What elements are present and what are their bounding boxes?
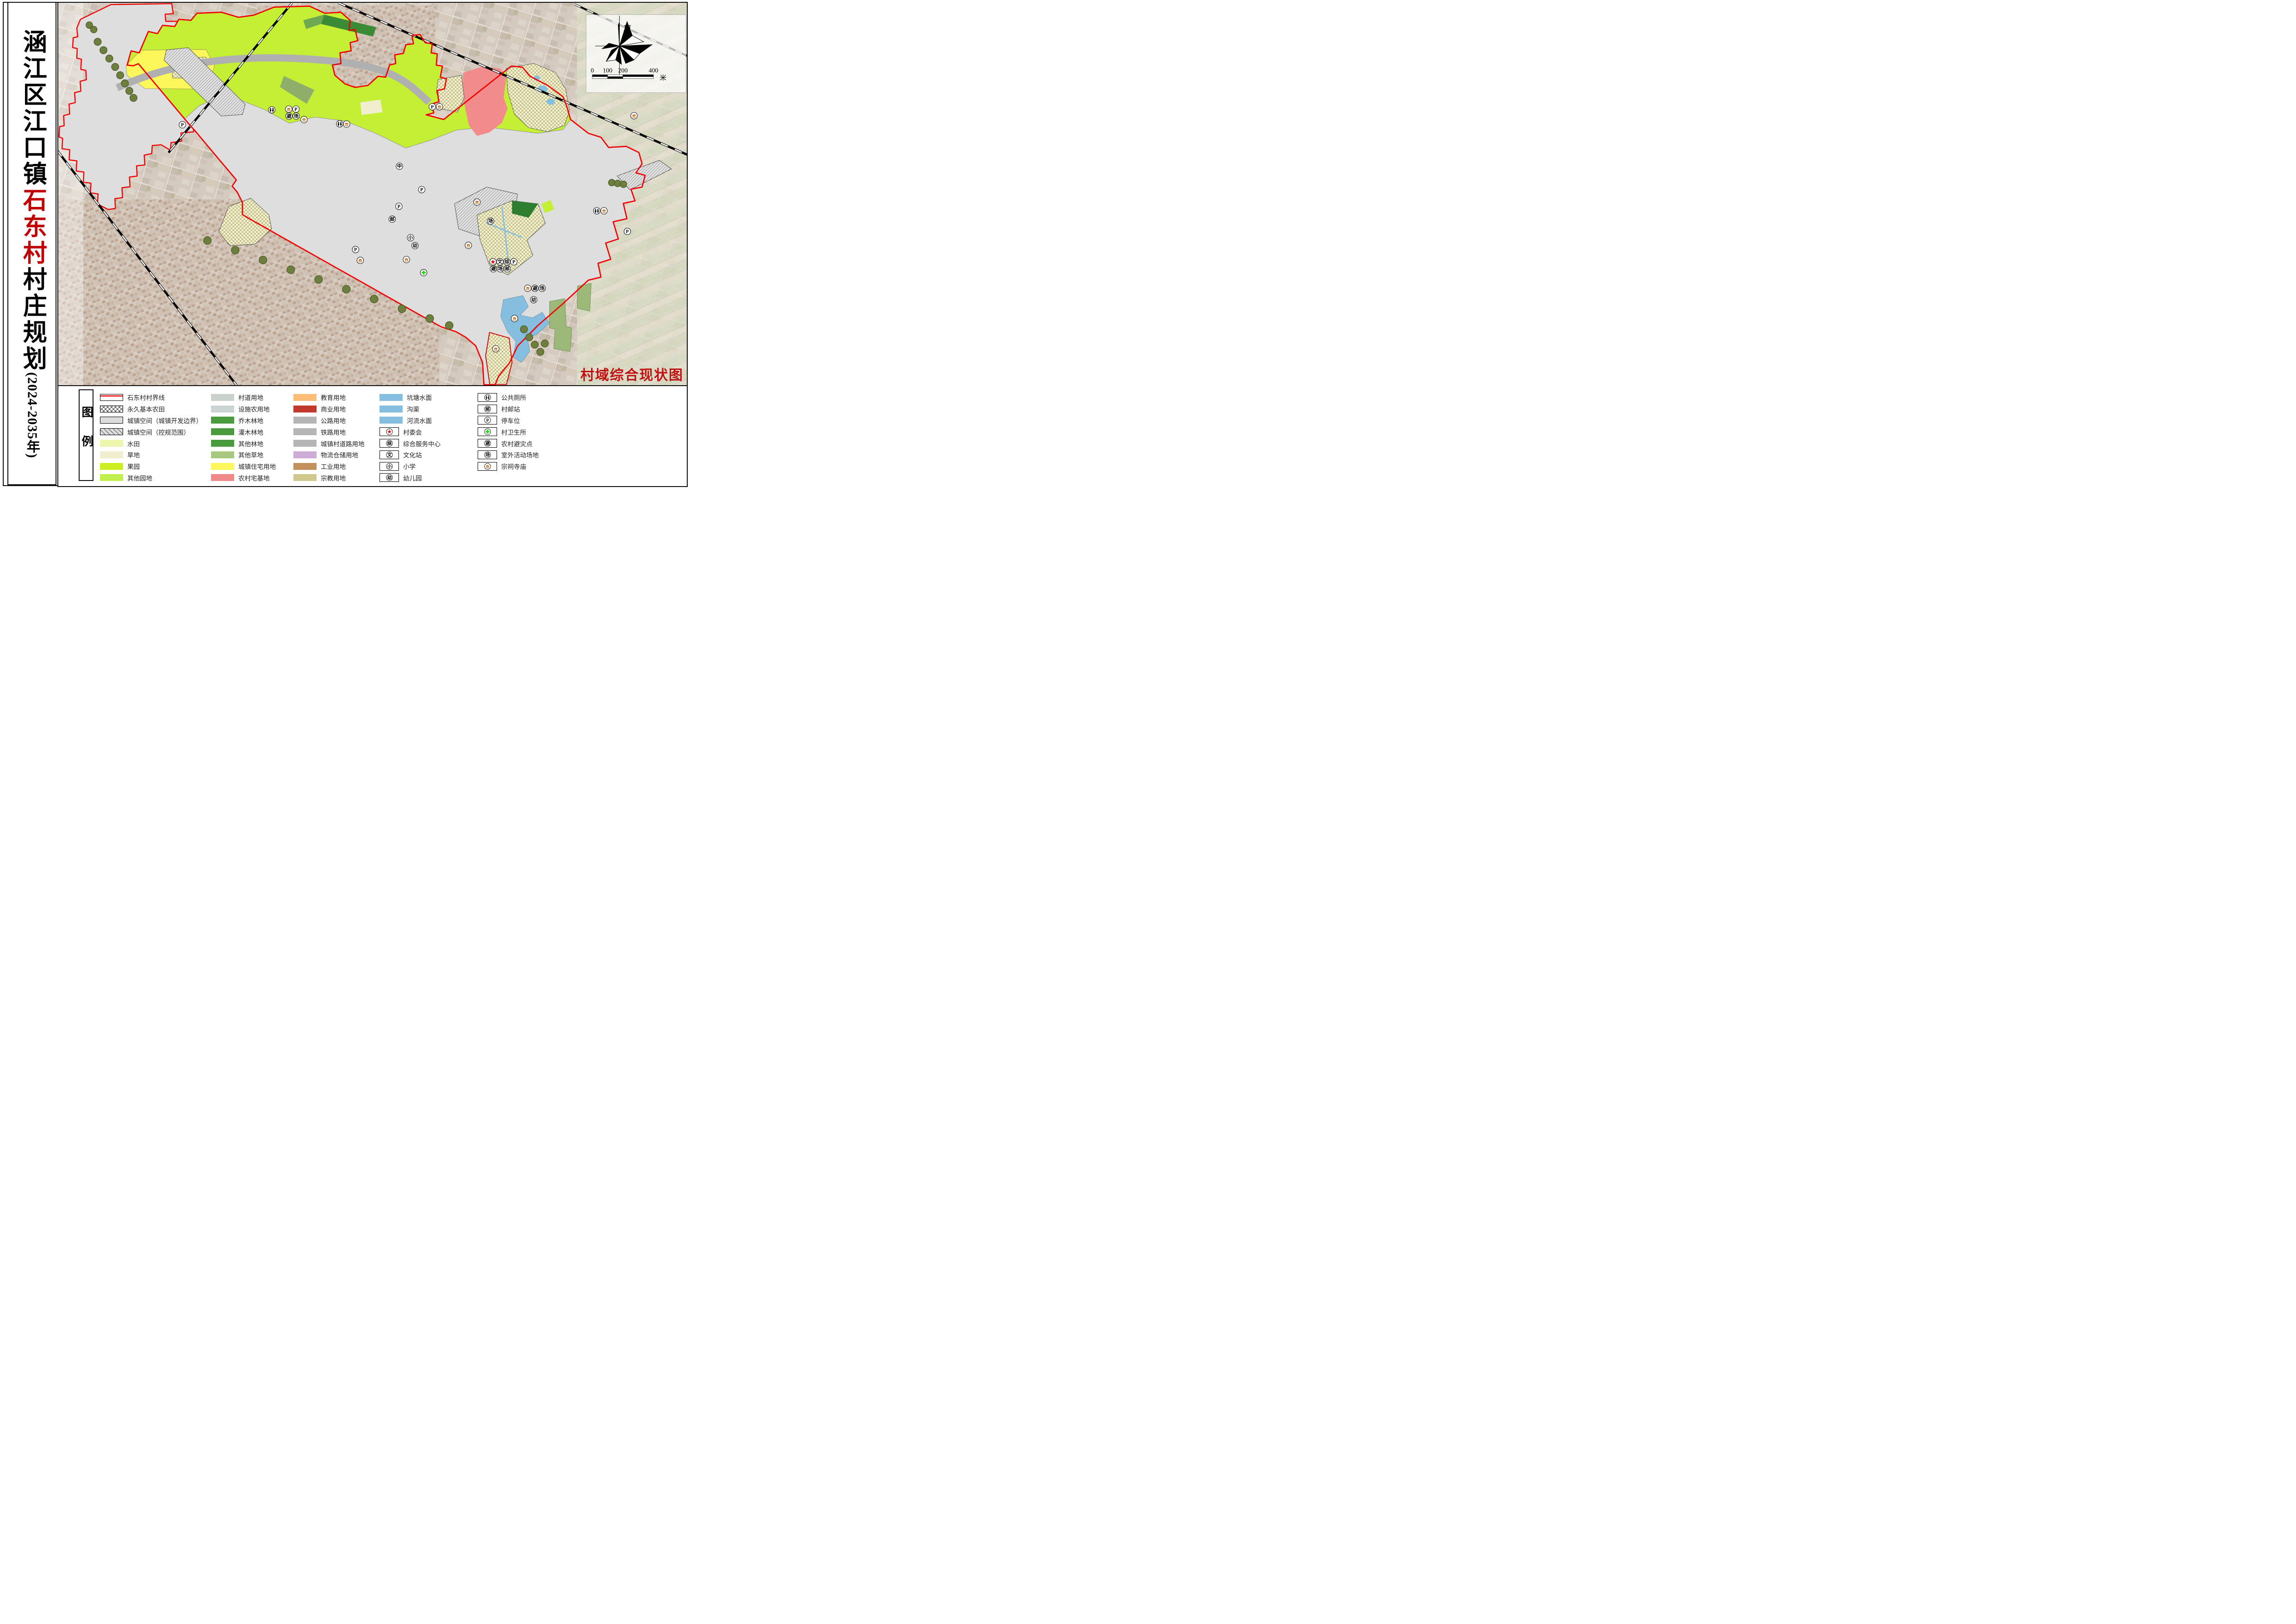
legend-item-label: 小学 — [403, 462, 416, 471]
legend-item: P停车位 — [478, 415, 539, 426]
legend-item-label: 宗教用地 — [321, 473, 346, 482]
legend-item: 河流水面 — [380, 415, 441, 426]
legend-icon-box: 场 — [478, 450, 497, 459]
map-icon-避: 避 — [490, 265, 497, 272]
legend-icon-box — [478, 462, 497, 471]
svg-text:P: P — [512, 260, 515, 265]
legend-item-label: 室外活动场地 — [501, 450, 539, 459]
legend-item-label: 村委会 — [403, 427, 422, 437]
map-icon-temple — [436, 103, 442, 110]
legend-item: 水田 — [100, 437, 202, 449]
legend-column-5: 公共厕所邮村邮站P停车位村卫生所避农村避灾点场室外活动场地宗祠寺庙 — [478, 392, 539, 472]
legend-swatch-highway — [293, 417, 317, 424]
legend-item-label: 村卫生所 — [501, 427, 526, 437]
legend-icon-box — [478, 393, 497, 402]
幼-icon: 幼 — [386, 474, 393, 481]
legend-item: ★村委会 — [380, 426, 441, 437]
map-icon-toilet — [593, 207, 600, 214]
map-icon-场: 场 — [539, 285, 545, 291]
legend-item: 邮村邮站 — [478, 403, 539, 415]
legend-item-label: 停车位 — [501, 416, 520, 425]
north-scale-box: N 0 100 200 400 米 — [586, 15, 686, 93]
legend-swatch-ruralhome — [211, 474, 234, 481]
svg-text:幼: 幼 — [413, 243, 417, 249]
map-icon-幼: 幼 — [412, 242, 418, 249]
legend-item-label: 村邮站 — [501, 404, 520, 413]
legend-item: 其他草地 — [211, 449, 276, 461]
legend-swatch-pond — [380, 394, 403, 401]
svg-text:邮: 邮 — [485, 406, 490, 412]
north-label: N — [624, 23, 631, 34]
legend-swatch-permfarm — [100, 406, 123, 412]
plan-title-village: 石东村 — [19, 187, 45, 267]
legend-swatch-commerce — [293, 406, 317, 412]
svg-text:幼: 幼 — [531, 297, 536, 303]
grass-patch-southeast-2 — [577, 283, 591, 311]
legend-item-label: 幼儿园 — [403, 473, 422, 482]
svg-text:邮: 邮 — [390, 216, 394, 222]
legend-item-label: 沟渠 — [407, 404, 419, 413]
legend-swatch-townres — [211, 463, 234, 470]
map-icon-小: 小 — [407, 234, 414, 241]
legend-icon-box — [478, 427, 497, 436]
svg-text:P: P — [486, 418, 489, 423]
legend-swatch-urbanhatch — [100, 428, 123, 435]
map-canvas: PP避场P中PP邮小幼P★文综P避场邮场避场幼P N 0 100 200 400 — [57, 2, 688, 386]
小-icon: 小 — [386, 463, 393, 470]
plan-title-suffix: 村庄规划 — [19, 267, 45, 372]
map-icon-P: P — [418, 186, 425, 193]
legend-item-label: 河流水面 — [407, 416, 432, 425]
map-title: 村域综合现状图 — [580, 368, 684, 383]
legend-icon-box: 小 — [380, 462, 399, 471]
legend-panel: 图例 石东村村界线永久基本农田城镇空间（城镇开发边界）城镇空间（控规范围）水田旱… — [57, 385, 688, 487]
legend-item: 避农村避灾点 — [478, 437, 539, 449]
map-icon-temple — [357, 257, 363, 263]
svg-text:避: 避 — [533, 285, 538, 291]
legend-item-label: 村道用地 — [238, 393, 263, 402]
legend-item: 铁路用地 — [293, 426, 365, 437]
legend-item-label: 铁路用地 — [321, 427, 346, 437]
文-icon: 文 — [386, 451, 393, 458]
legend-item: 文文化站 — [380, 449, 441, 461]
legend-item-label: 教育用地 — [321, 393, 346, 402]
legend-icon-box: 幼 — [380, 473, 399, 482]
svg-text:避: 避 — [485, 441, 490, 446]
map-icon-邮: 邮 — [504, 265, 510, 272]
legend-swatch-othergarden — [100, 474, 123, 481]
legend-item-label: 综合服务中心 — [403, 439, 441, 448]
map-icon-temple — [473, 199, 480, 205]
legend-icon-box: 避 — [478, 439, 497, 448]
map-icon-temple — [601, 207, 607, 214]
legend-icon-box: 邮 — [478, 405, 497, 413]
legend-item-label: 石东村村界线 — [127, 393, 165, 402]
svg-text:场: 场 — [485, 452, 489, 458]
map-icon-temple — [465, 242, 472, 249]
legend-swatch-edu — [293, 394, 317, 401]
village-map-svg: PP避场P中PP邮小幼P★文综P避场邮场避场幼P N 0 100 200 400 — [58, 3, 687, 385]
svg-text:综: 综 — [387, 441, 392, 446]
legend-swatch-dryland — [100, 451, 123, 458]
legend-item: 旱地 — [100, 449, 202, 461]
legend-item: 村卫生所 — [478, 426, 539, 437]
map-icon-中: 中 — [396, 163, 403, 169]
legend-swatch-logistics — [293, 451, 317, 458]
legend-item: 场室外活动场地 — [478, 449, 539, 461]
map-icon-P: P — [510, 258, 517, 265]
legend-item: 石东村村界线 — [100, 392, 202, 403]
svg-text:★: ★ — [491, 259, 496, 265]
svg-text:避: 避 — [286, 113, 292, 119]
legend-item: 永久基本农田 — [100, 403, 202, 415]
场-icon: 场 — [484, 451, 491, 458]
legend-item-label: 城镇住宅用地 — [238, 462, 276, 471]
map-icon-P: P — [624, 228, 630, 235]
legend-swatch-riverwater — [380, 417, 403, 424]
map-icon-temple — [343, 121, 350, 127]
svg-text:小: 小 — [386, 463, 392, 469]
map-icon-场: 场 — [497, 265, 504, 272]
svg-text:综: 综 — [504, 259, 510, 265]
legend-item-label: 永久基本农田 — [127, 404, 165, 413]
plan-title: 涵江区江口镇石东村村庄规划(2024-2035年) — [19, 29, 45, 458]
map-icon-toilet — [336, 120, 343, 127]
map-icon-综: 综 — [504, 258, 510, 265]
legend-item-label: 物流仓储用地 — [321, 450, 358, 459]
svg-text:邮: 邮 — [505, 266, 510, 272]
svg-text:P: P — [626, 229, 628, 234]
pond-small-2 — [547, 99, 555, 105]
legend-swatch-townroad — [293, 440, 317, 447]
legend-item-label: 乔木林地 — [238, 416, 263, 425]
legend-item: 宗祠寺庙 — [478, 461, 539, 472]
legend-item-label: 坑塘水面 — [407, 393, 432, 402]
scale-tick-400: 400 — [649, 67, 659, 74]
map-icon-P: P — [396, 203, 402, 209]
map-icon-temple — [492, 345, 499, 352]
legend-item-label: 果园 — [127, 462, 140, 471]
map-icon-P: P — [352, 246, 359, 253]
legend-item: 城镇空间（控规范围） — [100, 426, 202, 437]
scale-tick-0: 0 — [591, 67, 594, 74]
map-icon-star: ★ — [490, 258, 496, 265]
plan-title-years: (2024-2035年) — [25, 372, 39, 458]
svg-text:文: 文 — [497, 259, 503, 265]
legend-item-label: 旱地 — [127, 450, 140, 459]
legend-item: 幼幼儿园 — [380, 472, 441, 484]
legend-item-label: 农村避灾点 — [501, 439, 533, 448]
legend-item-label: 其他林地 — [238, 439, 263, 448]
svg-text:P: P — [398, 204, 400, 209]
svg-text:场: 场 — [294, 113, 299, 119]
map-icon-场: 场 — [487, 218, 494, 224]
map-icon-temple — [301, 116, 307, 123]
legend-swatch-boundary — [100, 394, 123, 401]
legend-swatch-villageroad — [211, 394, 234, 401]
legend-swatch-facilityfarm — [211, 406, 234, 412]
legend-item: 灌木林地 — [211, 426, 276, 437]
svg-text:幼: 幼 — [387, 475, 391, 481]
legend-item-label: 设施农用地 — [238, 404, 270, 413]
legend-item: 教育用地 — [293, 392, 365, 403]
star-icon: ★ — [386, 428, 393, 435]
scale-unit: 米 — [660, 74, 666, 82]
map-icon-避: 避 — [286, 113, 292, 119]
svg-text:避: 避 — [491, 266, 496, 272]
legend-item-label: 城镇村道路用地 — [321, 439, 365, 448]
legend-item-label: 文化站 — [403, 450, 422, 459]
legend-icon-box: P — [478, 416, 497, 425]
svg-text:文: 文 — [386, 452, 392, 458]
svg-text:P: P — [431, 105, 434, 110]
legend-item-label: 农村宅基地 — [238, 473, 270, 482]
legend-column-2: 村道用地设施农用地乔木林地灌木林地其他林地其他草地城镇住宅用地农村宅基地 — [211, 392, 276, 483]
legend-item: 物流仓储用地 — [293, 449, 365, 461]
map-icon-temple — [403, 256, 410, 262]
legend-swatch-arborforest — [211, 417, 234, 424]
legend-swatch-ditch — [380, 406, 403, 412]
svg-text:P: P — [181, 123, 184, 128]
svg-text:★: ★ — [387, 429, 392, 435]
legend-item: 公路用地 — [293, 415, 365, 426]
legend-column-3: 教育用地商业用地公路用地铁路用地城镇村道路用地物流仓储用地工业用地宗教用地 — [293, 392, 365, 483]
legend-icon-box: ★ — [380, 427, 399, 436]
P-icon: P — [484, 417, 491, 424]
svg-text:场: 场 — [488, 218, 493, 224]
legend-item-label: 水田 — [127, 439, 140, 448]
legend-item: 设施农用地 — [211, 403, 276, 415]
legend-swatch-otherforest — [211, 440, 234, 447]
legend-item: 公共厕所 — [478, 392, 539, 403]
svg-text:P: P — [420, 187, 423, 193]
legend-header-box: 图例 — [79, 389, 93, 481]
toilet-icon — [484, 394, 491, 401]
legend-item: 城镇村道路用地 — [293, 437, 365, 449]
map-icon-P: P — [429, 103, 436, 110]
legend-swatch-paddy — [100, 440, 123, 447]
plan-title-column: 涵江区江口镇石东村村庄规划(2024-2035年) — [7, 2, 56, 485]
map-icon-temple — [511, 315, 517, 322]
legend-item: 沟渠 — [380, 403, 441, 415]
map-icon-避: 避 — [532, 285, 538, 291]
svg-text:中: 中 — [397, 163, 402, 169]
legend-item: 坑塘水面 — [380, 392, 441, 403]
map-icon-P: P — [292, 106, 299, 112]
svg-text:场: 场 — [498, 266, 503, 272]
legend-item: 农村宅基地 — [211, 472, 276, 484]
map-icon-P: P — [179, 121, 186, 128]
svg-text:小: 小 — [408, 235, 413, 241]
legend-column-1: 石东村村界线永久基本农田城镇空间（城镇开发边界）城镇空间（控规范围）水田旱地果园… — [100, 392, 202, 483]
legend-item-label: 灌木林地 — [238, 427, 263, 437]
west-fade-strip — [58, 3, 83, 385]
legend-item-label: 其他园地 — [127, 473, 152, 482]
legend-swatch-religion — [293, 474, 317, 481]
legend-item: 乔木林地 — [211, 415, 276, 426]
legend-column-4: 坑塘水面沟渠河流水面★村委会综综合服务中心文文化站小小学幼幼儿园 — [380, 392, 441, 483]
legend-item: 商业用地 — [293, 403, 365, 415]
plan-title-region: 涵江区江口镇 — [19, 29, 45, 187]
legend-item: 村道用地 — [211, 392, 276, 403]
scale-tick-200: 200 — [618, 67, 628, 74]
避-icon: 避 — [484, 440, 491, 447]
legend-item-label: 公共厕所 — [501, 393, 526, 402]
legend-item-label: 工业用地 — [321, 462, 346, 471]
legend-item: 果园 — [100, 461, 202, 472]
legend-item: 宗教用地 — [293, 472, 365, 484]
legend-icon-box: 综 — [380, 439, 399, 448]
legend-swatch-urban — [100, 417, 123, 424]
legend-item: 城镇住宅用地 — [211, 461, 276, 472]
legend-icon-box: 文 — [380, 450, 399, 459]
scale-tick-100: 100 — [603, 67, 613, 74]
legend-item: 其他园地 — [100, 472, 202, 484]
legend-item-label: 商业用地 — [321, 404, 346, 413]
map-icon-幼: 幼 — [530, 296, 537, 303]
legend-swatch-shrubforest — [211, 428, 234, 435]
legend-item: 城镇空间（城镇开发边界） — [100, 415, 202, 426]
map-icon-场: 场 — [293, 113, 299, 119]
legend-item: 小小学 — [380, 461, 441, 472]
legend-item: 工业用地 — [293, 461, 365, 472]
map-icon-文: 文 — [497, 258, 503, 265]
map-icon-cross — [420, 269, 427, 276]
legend-swatch-railway — [293, 428, 317, 435]
svg-text:P: P — [294, 107, 297, 112]
legend-swatch-orchard — [100, 463, 123, 470]
legend-header: 图例 — [78, 406, 94, 464]
legend-item-label: 城镇空间（控规范围） — [127, 427, 190, 437]
map-icon-temple — [286, 106, 292, 112]
legend-item-label: 宗祠寺庙 — [501, 462, 526, 471]
综-icon: 综 — [386, 440, 393, 447]
legend-swatch-othergrass — [211, 451, 234, 458]
map-icon-邮: 邮 — [389, 216, 395, 222]
legend-item: 其他林地 — [211, 437, 276, 449]
legend-item-label: 其他草地 — [238, 450, 263, 459]
svg-text:场: 场 — [540, 285, 544, 291]
map-icon-toilet — [268, 106, 275, 113]
temple-icon — [484, 463, 491, 470]
legend-item-label: 公路用地 — [321, 416, 346, 425]
legend-item-label: 城镇空间（城镇开发边界） — [127, 416, 202, 425]
legend-swatch-industry — [293, 463, 317, 470]
svg-text:P: P — [354, 248, 357, 253]
邮-icon: 邮 — [484, 406, 491, 412]
map-icon-temple — [631, 112, 637, 119]
legend-item: 综综合服务中心 — [380, 437, 441, 449]
map-icon-temple — [524, 285, 531, 291]
cross-icon — [484, 428, 491, 435]
